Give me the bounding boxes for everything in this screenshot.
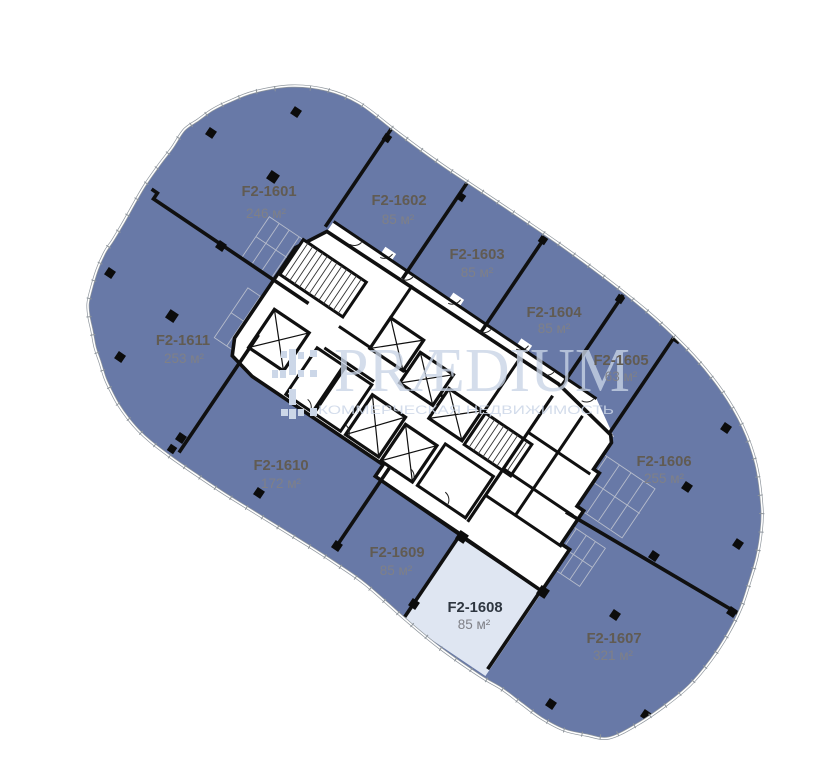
svg-text:172 м²: 172 м² — [261, 476, 302, 491]
svg-text:F2-1611: F2-1611 — [156, 333, 210, 349]
svg-text:F2-1603: F2-1603 — [449, 247, 504, 263]
svg-text:F2-1606: F2-1606 — [636, 454, 691, 470]
svg-text:F2-1609: F2-1609 — [369, 545, 424, 561]
svg-text:F2-1610: F2-1610 — [253, 458, 308, 474]
svg-text:253 м²: 253 м² — [164, 351, 205, 366]
svg-text:F2-1605: F2-1605 — [593, 353, 648, 369]
svg-text:85 м²: 85 м² — [458, 617, 491, 632]
svg-text:КОММЕРЧЕСКАЯ НЕДВИЖИМОСТЬ: КОММЕРЧЕСКАЯ НЕДВИЖИМОСТЬ — [318, 403, 614, 417]
svg-text:85 м²: 85 м² — [380, 563, 413, 578]
svg-text:F2-1602: F2-1602 — [371, 193, 426, 209]
svg-text:246 м²: 246 м² — [246, 206, 287, 221]
svg-text:F2-1601: F2-1601 — [241, 184, 296, 200]
svg-text:85 м²: 85 м² — [382, 212, 415, 227]
svg-text:85 м²: 85 м² — [538, 321, 571, 336]
svg-text:85 м²: 85 м² — [461, 265, 494, 280]
svg-text:F2-1607: F2-1607 — [586, 631, 641, 647]
svg-text:255 м²: 255 м² — [644, 471, 685, 486]
svg-text:PRÆDIUM: PRÆDIUM — [334, 337, 630, 405]
svg-text:321 м²: 321 м² — [593, 648, 634, 663]
svg-text:63 м²: 63 м² — [605, 369, 638, 384]
svg-text:F2-1604: F2-1604 — [526, 305, 582, 321]
svg-text:F2-1608: F2-1608 — [447, 600, 502, 616]
